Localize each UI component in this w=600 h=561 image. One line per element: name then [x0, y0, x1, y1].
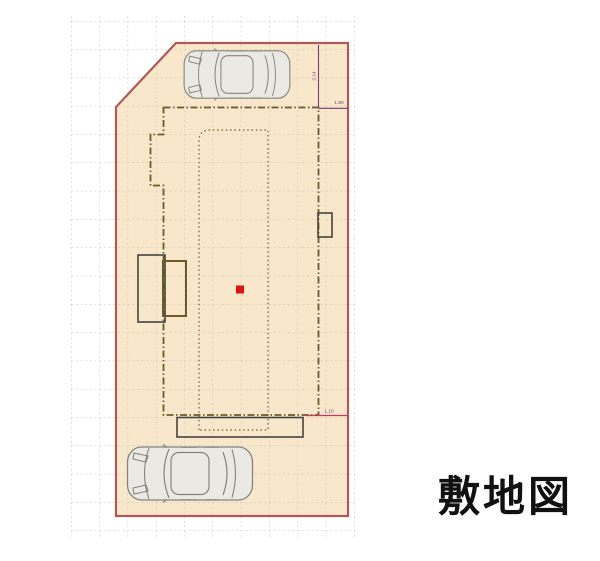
car-bottom-view-icon: [128, 445, 253, 503]
dimension-label-vertical: 2.14: [312, 71, 318, 81]
dimension-label-bottom-horizontal: 1.10: [324, 409, 334, 415]
car-top-view-icon: [184, 49, 290, 101]
center-marker: [236, 286, 244, 294]
dimension-label-top-horizontal: 1.80: [334, 100, 344, 106]
plan-title: 敷地図: [438, 474, 573, 520]
site-plan-page: { "title": "敷地図", "dimensions": { "top_v…: [0, 0, 600, 561]
